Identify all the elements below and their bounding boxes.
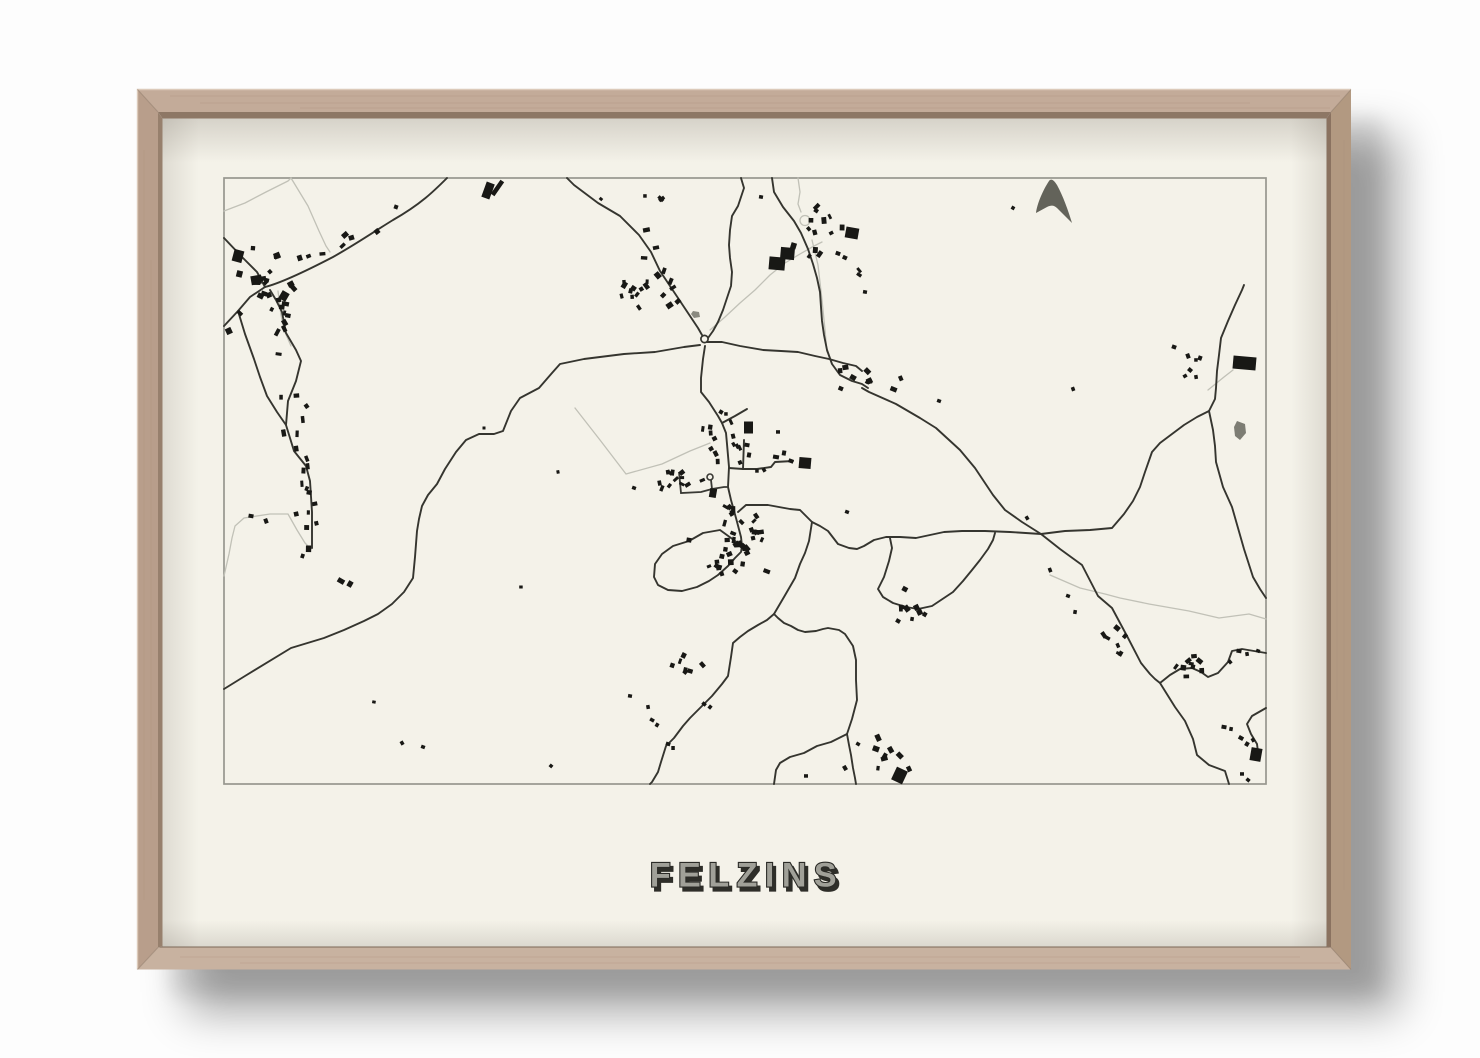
svg-text:FELZINS: FELZINS [650, 857, 844, 895]
